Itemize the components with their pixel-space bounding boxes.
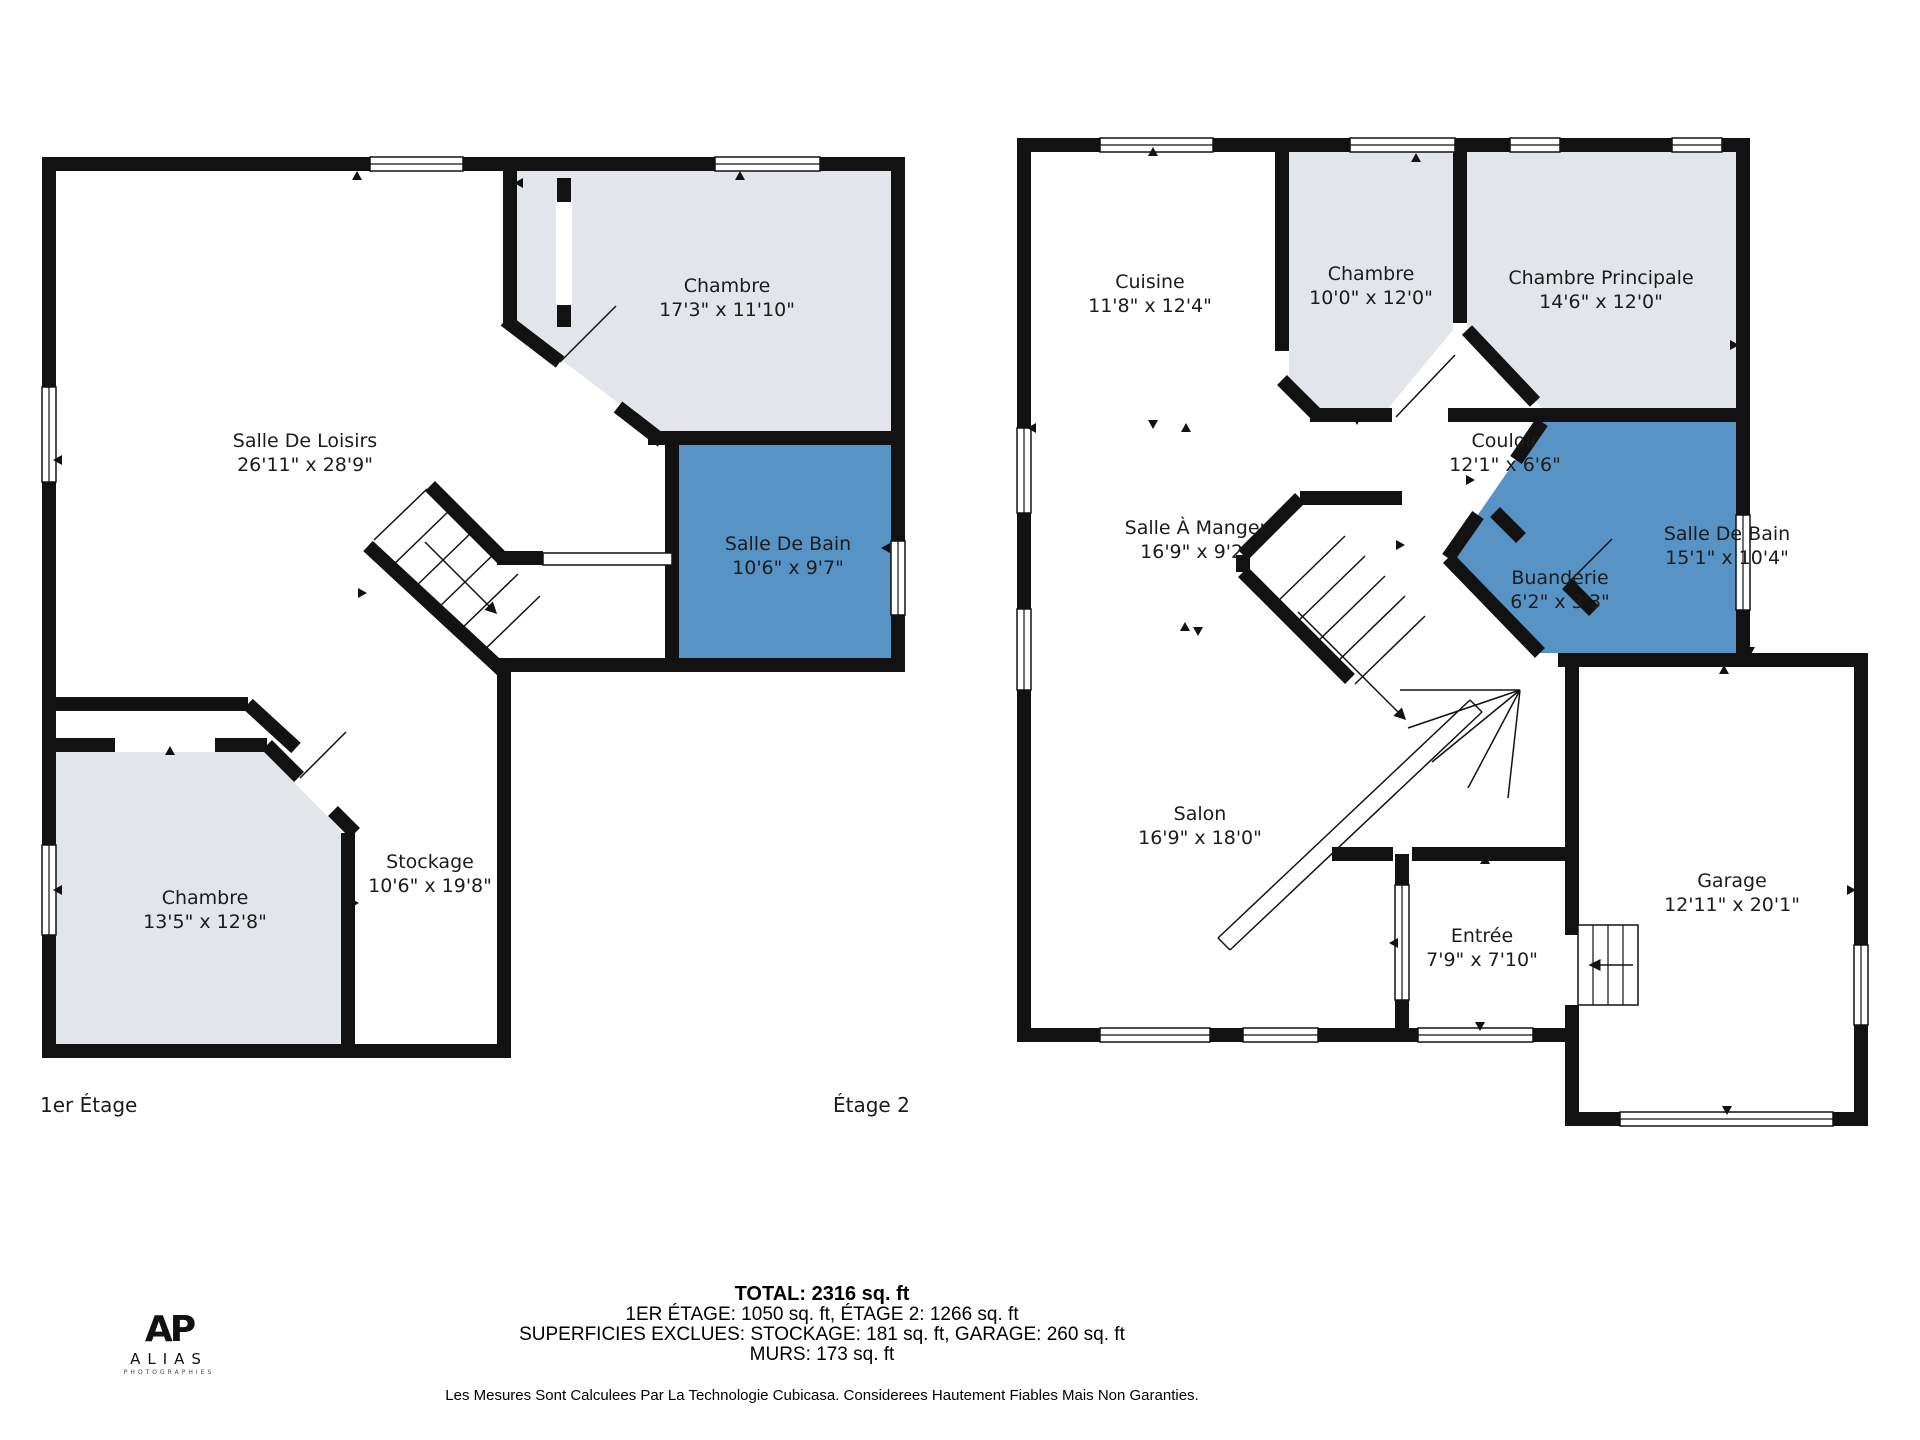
floor-plan-page: Salle De Loisirs26'11" x 28'9"Chambre17'… xyxy=(0,0,1920,1440)
floor-plans-canvas: Salle De Loisirs26'11" x 28'9"Chambre17'… xyxy=(0,0,1920,1440)
door-direction-marker xyxy=(1389,938,1398,948)
logo-brand-name: ALIAS xyxy=(104,1350,234,1368)
room-label-dimensions: 16'9" x 9'2" xyxy=(1140,541,1252,563)
room-label-name: Salle De Bain xyxy=(725,533,851,555)
door-direction-marker xyxy=(1180,622,1190,631)
room-label-name: Salon xyxy=(1174,803,1227,825)
door-direction-marker xyxy=(1148,420,1158,429)
door-direction-marker xyxy=(352,171,362,180)
walls-area: MURS: 173 sq. ft xyxy=(122,1345,1522,1365)
door-leaf-lines xyxy=(300,306,616,778)
room-label-dimensions: 12'11" x 20'1" xyxy=(1664,894,1800,916)
total-area: TOTAL: 2316 sq. ft xyxy=(122,1283,1522,1305)
room-label-dimensions: 14'6" x 12'0" xyxy=(1539,291,1663,313)
measurement-disclaimer: Les Mesures Sont Calculees Par La Techno… xyxy=(122,1387,1522,1404)
room-label-name: Salle De Bain xyxy=(1664,523,1790,545)
area-summary: TOTAL: 2316 sq. ft 1ER ÉTAGE: 1050 sq. f… xyxy=(122,1283,1522,1404)
room-label-dimensions: 12'1" x 6'6" xyxy=(1449,454,1561,476)
door-direction-marker xyxy=(1396,540,1405,550)
room-label-dimensions: 17'3" x 11'10" xyxy=(659,299,795,321)
stair-void-railing xyxy=(1218,700,1482,950)
room-label-name: Stockage xyxy=(386,851,474,873)
alias-logo: AP ALIAS PHOTOGRAPHIES xyxy=(104,1312,234,1376)
room-label-name: Chambre xyxy=(162,887,249,909)
room-label-dimensions: 10'6" x 19'8" xyxy=(368,875,492,897)
staircase2-direction-arrow xyxy=(1298,612,1405,719)
closet-slot xyxy=(556,200,572,305)
room-label-name: Chambre Principale xyxy=(1508,267,1693,289)
door-direction-marker xyxy=(1466,475,1475,485)
room-label-name: Salle À Manger xyxy=(1125,516,1268,539)
entry-garage-steps xyxy=(1578,925,1638,1005)
door-direction-marker xyxy=(1181,423,1191,432)
logo-sub-text: PHOTOGRAPHIES xyxy=(104,1369,234,1376)
floor2-title: Étage 2 xyxy=(833,1093,910,1117)
logo-monogram: AP xyxy=(104,1312,234,1348)
staircase2-treads xyxy=(1275,536,1425,684)
room-label-name: Couloir xyxy=(1472,430,1539,452)
staircase2-winders xyxy=(1400,690,1520,798)
room-label-dimensions: 11'8" x 12'4" xyxy=(1088,295,1212,317)
door-direction-marker xyxy=(358,588,367,598)
room-label-name: Entrée xyxy=(1451,925,1513,947)
room-label-dimensions: 26'11" x 28'9" xyxy=(237,454,373,476)
room-label-name: Garage xyxy=(1697,870,1767,892)
room-label-name: Salle De Loisirs xyxy=(233,430,377,452)
room-label-dimensions: 10'0" x 12'0" xyxy=(1309,287,1433,309)
excluded-areas: SUPERFICIES EXCLUES: STOCKAGE: 181 sq. f… xyxy=(122,1325,1522,1345)
room-label-dimensions: 15'1" x 10'4" xyxy=(1665,547,1789,569)
room-label-name: Chambre xyxy=(684,275,771,297)
room-label-dimensions: 16'9" x 18'0" xyxy=(1138,827,1262,849)
floor-areas: 1ER ÉTAGE: 1050 sq. ft, ÉTAGE 2: 1266 sq… xyxy=(122,1305,1522,1325)
room-label-name: Cuisine xyxy=(1115,271,1185,293)
room-label-name: Chambre xyxy=(1328,263,1415,285)
door-direction-marker xyxy=(1193,627,1203,636)
room-label-name: Buanderie xyxy=(1511,567,1608,589)
room-label-dimensions: 7'9" x 7'10" xyxy=(1426,949,1538,971)
room-label-dimensions: 6'2" x 3'3" xyxy=(1510,591,1610,613)
room-label-dimensions: 13'5" x 12'8" xyxy=(143,911,267,933)
floor1-title: 1er Étage xyxy=(40,1093,137,1117)
stair-railing xyxy=(543,553,672,565)
room-label-dimensions: 10'6" x 9'7" xyxy=(732,557,844,579)
door-direction-marker xyxy=(165,746,175,755)
